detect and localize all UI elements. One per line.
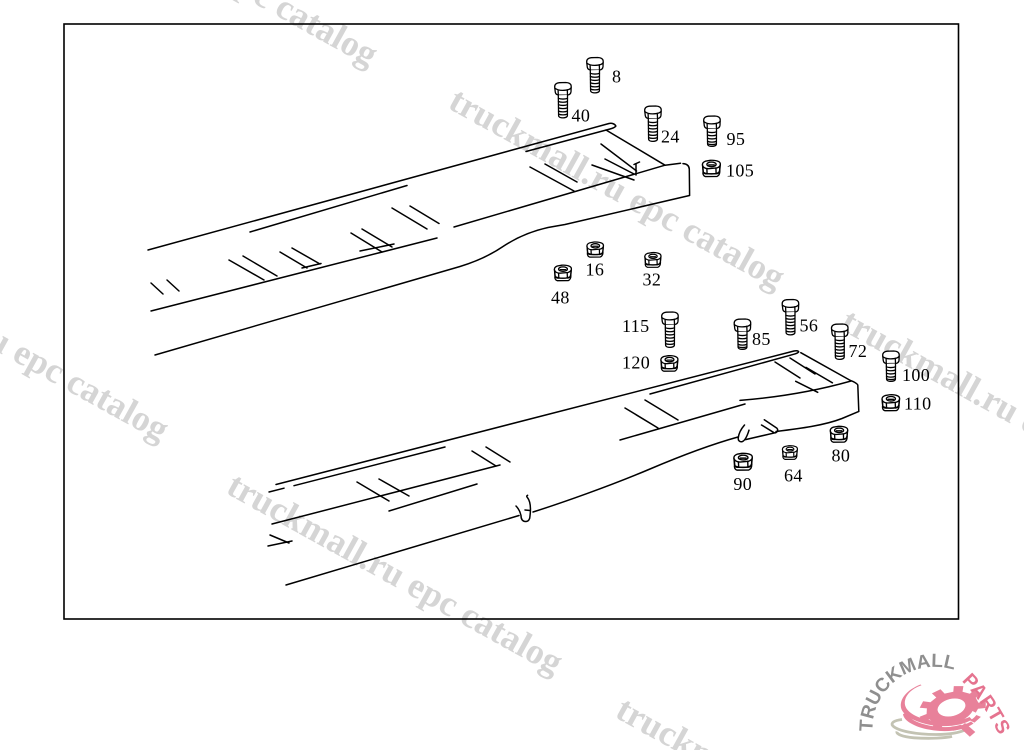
svg-text:truckmall.ru epc catalog: truckmall.ru epc catalog	[0, 231, 176, 449]
svg-text:56: 56	[800, 316, 819, 336]
svg-text:110: 110	[904, 394, 932, 414]
svg-text:100: 100	[902, 365, 930, 385]
svg-text:16: 16	[586, 260, 605, 280]
svg-text:95: 95	[727, 129, 746, 149]
svg-text:truckmall.ru epc catalog: truckmall.ru epc catalog	[443, 79, 792, 297]
svg-text:32: 32	[643, 270, 662, 290]
svg-text:80: 80	[832, 446, 851, 466]
svg-text:105: 105	[726, 161, 754, 181]
svg-text:truckmall.ru epc catalog: truckmall.ru epc catalog	[221, 464, 570, 682]
svg-text:48: 48	[551, 288, 570, 308]
svg-text:72: 72	[849, 341, 868, 361]
svg-text:120: 120	[622, 353, 650, 373]
svg-text:64: 64	[784, 466, 803, 486]
svg-text:90: 90	[733, 474, 752, 494]
svg-text:115: 115	[622, 316, 650, 336]
svg-text:85: 85	[752, 329, 771, 349]
svg-text:24: 24	[661, 127, 680, 147]
svg-text:8: 8	[612, 66, 621, 86]
svg-text:truckmall.ru epc catalog: truckmall.ru epc catalog	[36, 0, 385, 74]
svg-text:40: 40	[572, 106, 591, 126]
